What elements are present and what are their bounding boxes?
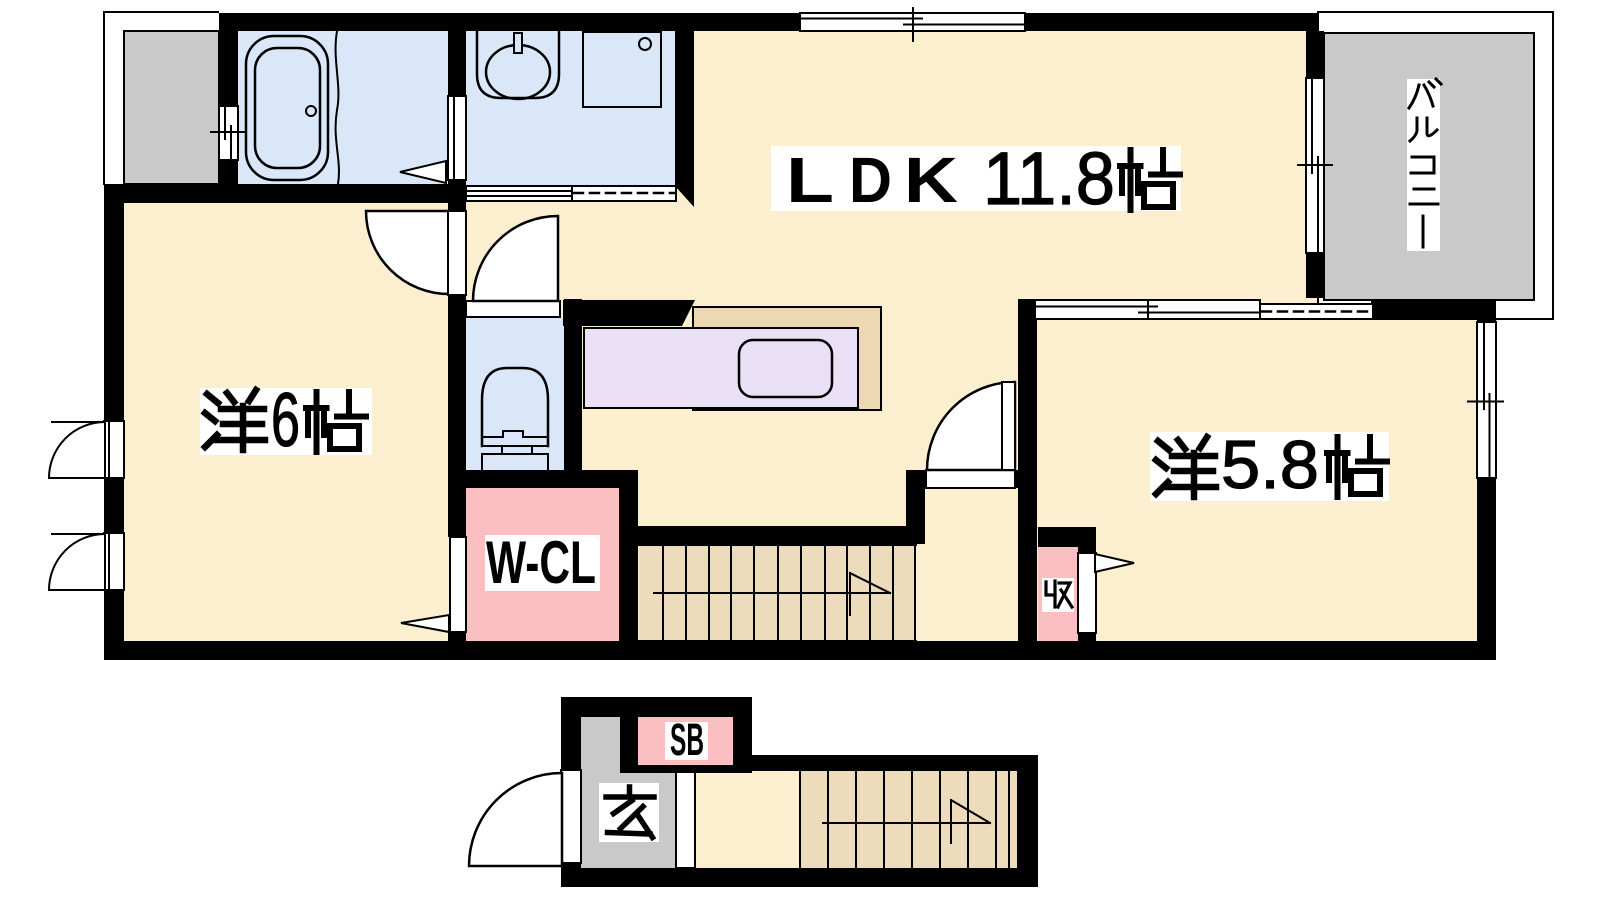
svg-text:D: D xyxy=(849,144,892,216)
svg-text:K: K xyxy=(904,144,958,216)
svg-text:11.8: 11.8 xyxy=(983,137,1115,220)
svg-text:L: L xyxy=(786,144,834,216)
svg-text:SB: SB xyxy=(670,714,704,765)
svg-text:5.8: 5.8 xyxy=(1221,427,1319,503)
svg-text:6: 6 xyxy=(271,378,300,463)
svg-text:W-CL: W-CL xyxy=(486,529,596,596)
